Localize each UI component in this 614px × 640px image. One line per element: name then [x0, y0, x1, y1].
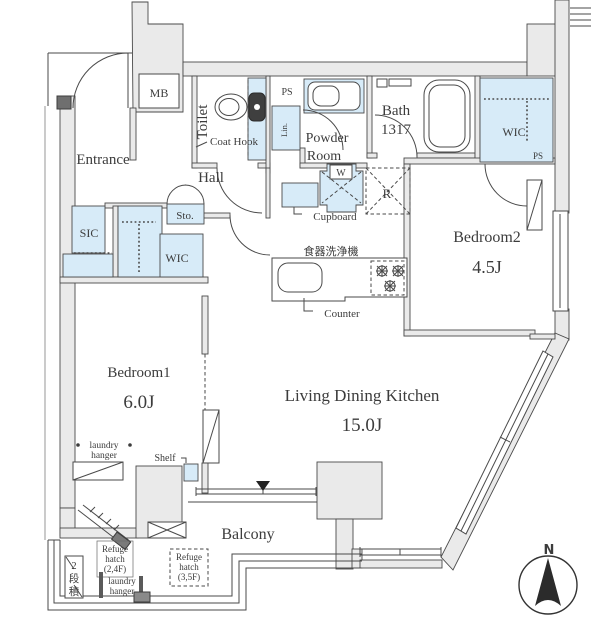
sto-label: Sto. [176, 210, 194, 222]
bedroom2-label: Bedroom2 [453, 229, 521, 246]
two-tier-label-3: 積 [69, 585, 80, 598]
wall-entrance-east [130, 108, 136, 160]
bedroom2-size-label: 4.5J [472, 257, 502, 277]
wall-west [60, 96, 75, 508]
wic-hall-area-a [118, 206, 162, 277]
bedroom2-door-swing [485, 164, 527, 206]
two-tier-label-2: 段 [69, 572, 80, 585]
cupboard-body [282, 183, 318, 207]
wall-top-band [183, 62, 527, 76]
toilet-label: Toilet [195, 104, 211, 140]
wall-bedroom1-south [60, 528, 138, 538]
storage-double-door [167, 185, 204, 204]
wall-toilet-south-a [192, 163, 217, 168]
refuge-hatch-24-label-1: Refuge [102, 544, 128, 554]
column-balcony [317, 462, 382, 519]
mailbox-label: MB [150, 86, 169, 100]
cupboard-label: Cupboard [313, 211, 357, 223]
toilet-bowl-inner [219, 99, 239, 116]
wic-bedroom2-label: WIC [502, 125, 525, 139]
hall-ldk-door [230, 215, 270, 255]
vanity-basin [313, 86, 339, 106]
refuge-hatch-35-label-2: hatch [179, 562, 199, 572]
fridge-label: R [383, 186, 392, 201]
wall-bedroom2-south-step [530, 334, 555, 339]
window-ldk-south-left [188, 487, 317, 502]
refuge-hatch-35-label-3: (3,5F) [178, 572, 200, 582]
wall-bedroom1-north [60, 277, 208, 283]
wall-bedroom2-south [404, 330, 535, 336]
window-diagonal-glass [461, 354, 548, 531]
window-ldk-south-right [360, 547, 441, 557]
bath-label: Bath [382, 103, 411, 119]
refuge-hatch-24-label-2: hatch [105, 554, 125, 564]
kitchen-sink [278, 263, 322, 292]
bedroom1-size-label: 6.0J [123, 392, 154, 413]
counter-label: Counter [324, 308, 360, 320]
wall-end-block [57, 96, 71, 109]
floor-plan: N MB Entrance Hall Toilet Coat Hook PS L… [0, 0, 614, 640]
toilet-tank-button [254, 104, 260, 110]
laundry-hanger-bedroom1-label-2: hanger [91, 451, 118, 461]
wall-bedroom2-west [404, 164, 410, 336]
wall-right-upper [555, 0, 569, 213]
entrance-label: Entrance [76, 152, 130, 168]
wic-hall-label: WIC [165, 251, 188, 265]
wall-sic-wic-divider [113, 206, 118, 277]
shelf-box [184, 464, 198, 481]
compass: N [519, 543, 577, 614]
balcony-label: Balcony [221, 526, 274, 543]
shelf-label: Shelf [154, 453, 176, 464]
floor-plan-svg: N MB Entrance Hall Toilet Coat Hook PS L… [0, 0, 614, 640]
balcony-hatched-block [134, 592, 150, 602]
compass-north-label: N [544, 543, 555, 558]
laundry-hanger-balcony-label-1: laundry [108, 576, 136, 586]
refuge-hatch-35-label-1: Refuge [176, 552, 202, 562]
shower-unit [377, 79, 387, 87]
bath-size-label: 1317 [381, 122, 412, 138]
ldk-size-label: 15.0J [342, 415, 383, 436]
entrance-door [73, 53, 128, 108]
coat-hook-leader [196, 142, 207, 147]
ps-bedroom2-label: PS [533, 151, 543, 161]
wic-bedroom2-area [480, 78, 553, 162]
ldk-label: Living Dining Kitchen [285, 386, 440, 405]
laundry-dot-right [128, 443, 132, 447]
shelf-leader [181, 458, 186, 463]
bedroom1-label: Bedroom1 [107, 365, 170, 381]
laundry-dot-left [76, 443, 80, 447]
ps-top-label: PS [281, 87, 292, 98]
wall-hall-east-upper [266, 76, 270, 173]
powder-room-label-2: Room [307, 149, 341, 164]
wall-hall-east-lower [266, 168, 270, 218]
dishwasher-label: 食器洗浄機 [304, 244, 359, 258]
washer-label: W [336, 168, 346, 179]
bath-counter [389, 79, 411, 86]
two-tier-label-1: 2 [71, 561, 76, 572]
laundry-hanger-balcony-label-2: hanger [110, 586, 135, 596]
cupboard-leader [294, 207, 302, 214]
hall-label: Hall [198, 170, 224, 186]
linen-label: Lin. [279, 123, 289, 137]
wall-bath-west [367, 76, 372, 158]
bathtub-inner [429, 85, 465, 147]
wall-bath-east [475, 76, 480, 160]
coat-hook-label: Coat Hook [210, 136, 258, 148]
sic-area-b [63, 254, 113, 277]
wall-bath-south-b [417, 153, 475, 158]
wall-bedroom1-east-upper [202, 296, 208, 354]
sic-label: SIC [80, 226, 99, 240]
powder-room-label-1: Powder [306, 131, 349, 146]
balcony-railing [48, 540, 362, 610]
wall-hall-south [203, 213, 230, 218]
hanger-post-left [99, 572, 103, 598]
laundry-hanger-bedroom1-label-1: laundry [89, 441, 118, 451]
refuge-hatch-24-label-3: (2,4F) [104, 564, 126, 574]
window-sill-south [360, 560, 442, 568]
wall-bath-south-a [367, 153, 377, 158]
wall-top-right-step [527, 24, 557, 76]
